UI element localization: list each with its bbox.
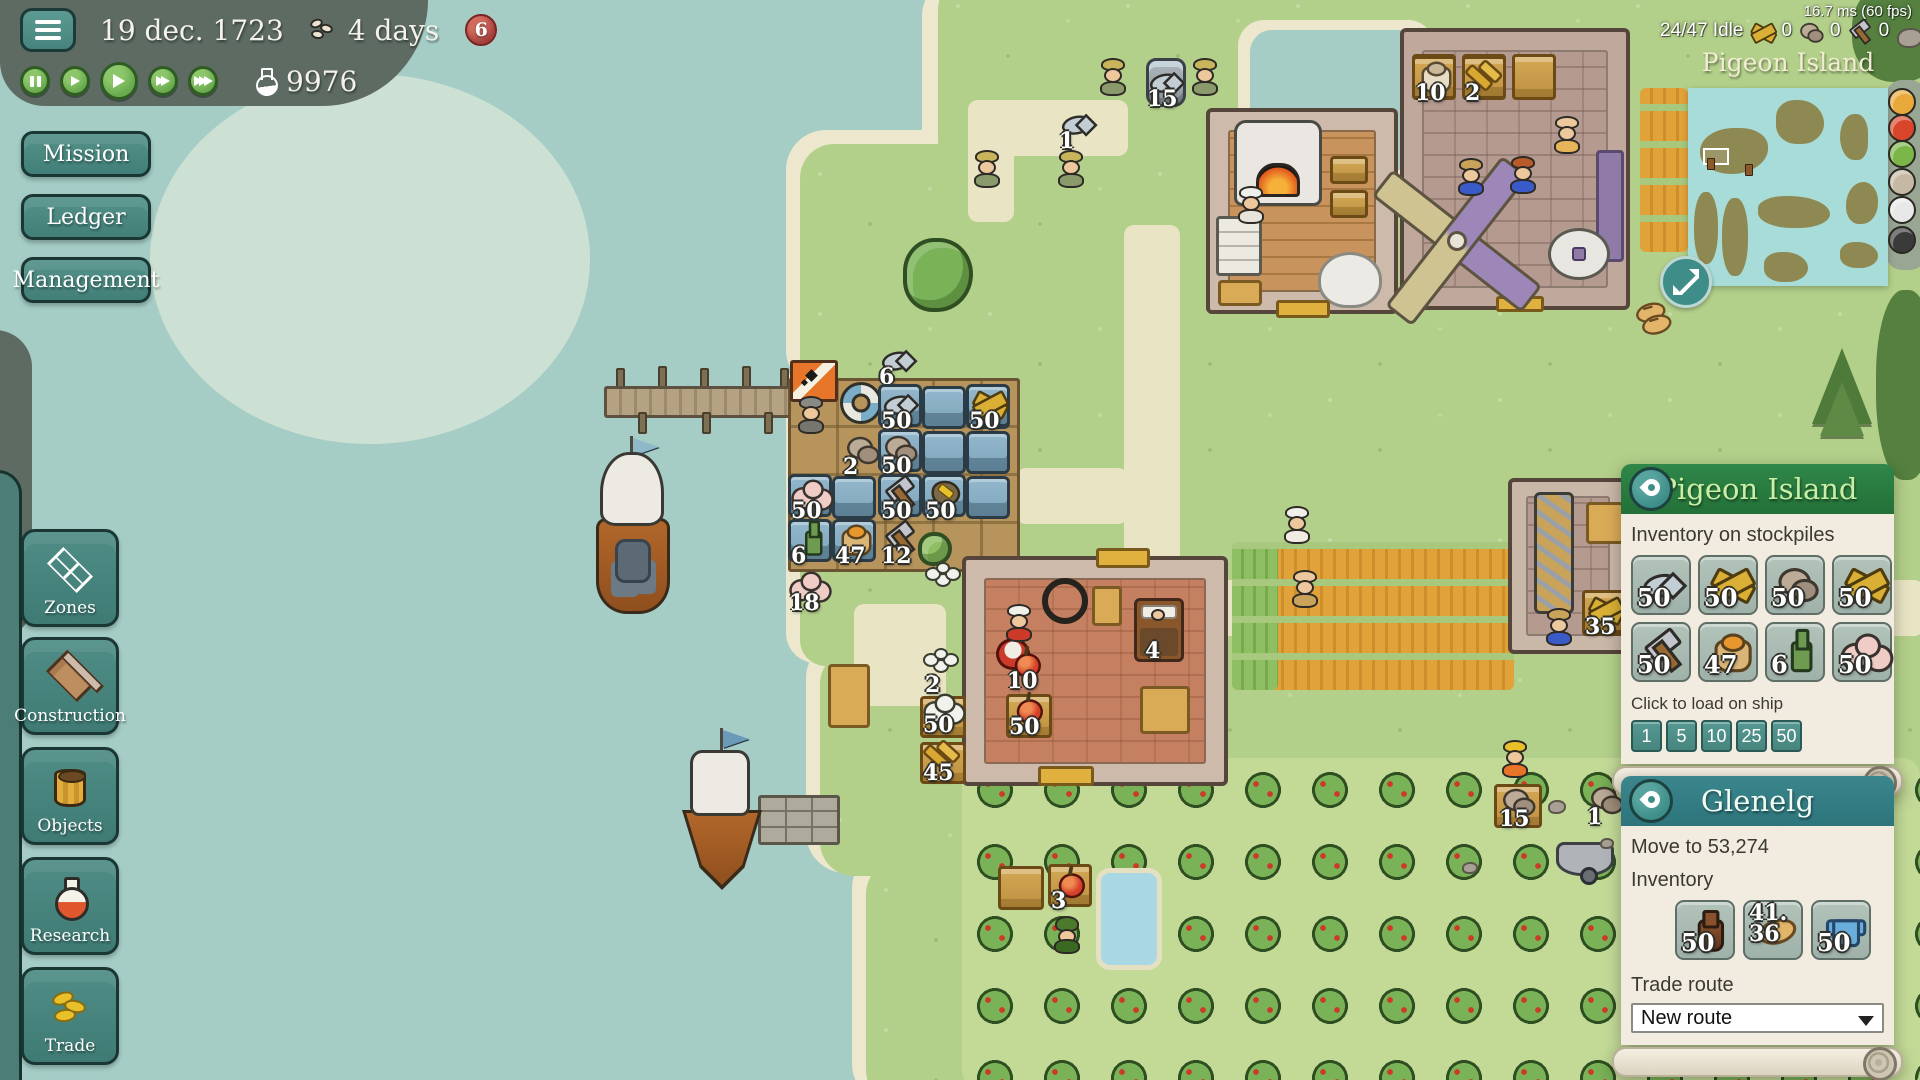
wool-bin-marker[interactable]: 50 — [788, 474, 832, 522]
pier-post — [658, 366, 667, 388]
dock-worker[interactable] — [796, 396, 826, 436]
cargo-item-bread[interactable]: 41.36 — [1743, 900, 1803, 960]
tool-objects-button[interactable]: Objects — [21, 747, 119, 845]
baker[interactable] — [1236, 186, 1266, 226]
pier-post — [764, 412, 773, 434]
stone-icon — [1799, 19, 1822, 42]
resource-apple-icon[interactable] — [1888, 114, 1916, 142]
forager[interactable] — [1052, 916, 1082, 956]
tool-construction-button[interactable]: Construction — [21, 637, 119, 735]
house-door-top — [1096, 548, 1150, 568]
stock-item-planks[interactable]: 50 — [1698, 555, 1758, 615]
minimap-title: Pigeon Island — [1688, 48, 1888, 77]
research-flask-icon — [254, 68, 276, 94]
hammer-marker[interactable]: 12 — [878, 519, 922, 567]
main-menu-button[interactable] — [20, 8, 76, 52]
ship-inventory-heading: Inventory — [1631, 869, 1884, 892]
empty-stockpile-bin[interactable] — [922, 386, 966, 429]
stock-item-fish[interactable]: 50 — [1631, 555, 1691, 615]
load-5-button[interactable]: 5 — [1666, 720, 1697, 752]
resource-marker-fish[interactable]: 6 — [876, 340, 920, 388]
trade-icon — [24, 980, 116, 1036]
planks-crate-marker[interactable]: 35 — [1582, 590, 1626, 638]
stock-item-hammer[interactable]: 50 — [1631, 622, 1691, 682]
forest-edge — [1876, 290, 1920, 480]
ship-panel-title: Glenelg — [1701, 784, 1814, 818]
stockpile-inventory-heading: Inventory on stockpiles — [1631, 524, 1884, 547]
island-panel-header: Pigeon Island — [1621, 464, 1894, 514]
miller[interactable] — [1456, 158, 1486, 198]
game-screen: 6 1 15 10 2 2 50 50 50 50 50 50 6 47 12 … — [0, 0, 1920, 1080]
crate[interactable] — [1330, 156, 1368, 184]
pine-tree — [1812, 348, 1872, 424]
idle-workers: 24/47 Idle — [1660, 20, 1743, 42]
sawhorse-planks[interactable] — [1534, 492, 1574, 614]
load-25-button[interactable]: 25 — [1736, 720, 1767, 752]
location-pin-icon — [1629, 779, 1673, 823]
notification-badge[interactable]: 6 — [465, 14, 497, 46]
tool-zones-button[interactable]: Zones — [21, 529, 119, 627]
flour-crate-marker[interactable]: 10 — [1412, 56, 1456, 104]
bakery-table[interactable] — [1218, 280, 1262, 306]
minimap-expand-button[interactable] — [1660, 256, 1712, 308]
cook[interactable] — [1004, 604, 1034, 644]
stone-crate-marker[interactable]: 15 — [1496, 782, 1540, 830]
pier-post — [702, 412, 711, 434]
pier-post — [742, 366, 751, 388]
fish-bin-marker[interactable]: 50 — [878, 384, 922, 432]
resource-marker-fish[interactable]: 1 — [1056, 104, 1100, 152]
apple-marker[interactable]: 10 — [1004, 644, 1048, 692]
resource-stone-icon[interactable] — [1888, 168, 1916, 196]
fast-forward-button[interactable] — [148, 66, 178, 96]
empty-stockpile-bin[interactable] — [922, 431, 966, 474]
planks-count: 0 — [1781, 20, 1792, 42]
loom-table — [1092, 586, 1122, 626]
play-slow-button[interactable] — [60, 66, 90, 96]
ledger-button[interactable]: Ledger — [21, 194, 151, 240]
ship-inventory-grid: 50 41.36 50 — [1675, 900, 1884, 960]
island-panel-title: Pigeon Island — [1657, 472, 1857, 506]
stockpile-grid: 50 50 50 50 50 47 6 50 — [1631, 555, 1884, 682]
trade-route-heading: Trade route — [1631, 974, 1884, 997]
resource-leaf-icon[interactable] — [1888, 140, 1916, 168]
empty-crate[interactable] — [998, 866, 1044, 910]
fisherman[interactable] — [972, 150, 1002, 190]
resource-coal-icon[interactable] — [1888, 226, 1916, 254]
bottle-bin-marker[interactable]: 6 — [788, 519, 832, 567]
stock-item-wool[interactable]: 50 — [1832, 622, 1892, 682]
ship-panel-header: Glenelg — [1621, 776, 1894, 826]
food-days: 4 days — [348, 14, 440, 47]
ship-panel: Glenelg Move to 53,274 Inventory 50 41.3… — [1621, 776, 1894, 1077]
cloud-blob — [150, 74, 590, 444]
food-icon — [308, 17, 338, 43]
stock-item-stones[interactable]: 50 — [1765, 555, 1825, 615]
miner[interactable] — [1500, 740, 1530, 780]
resource-iron-icon[interactable] — [1888, 196, 1916, 224]
island-panel: Pigeon Island Inventory on stockpiles 50… — [1621, 464, 1894, 796]
fisherman[interactable] — [1190, 58, 1220, 98]
cargo-item-shirt[interactable]: 50 — [1811, 900, 1871, 960]
villager-with-bread[interactable] — [1552, 116, 1582, 156]
ore-bin-marker[interactable]: 50 — [922, 474, 966, 522]
farmer[interactable] — [1290, 570, 1320, 610]
spinning-wheel[interactable] — [1042, 578, 1088, 624]
miller[interactable] — [1508, 156, 1538, 196]
research-points: 9976 — [286, 65, 357, 98]
management-button[interactable]: Management — [21, 257, 151, 303]
rock — [1897, 28, 1920, 48]
stone-bin-marker[interactable]: 50 — [878, 429, 922, 477]
resource-corn-icon[interactable] — [1888, 88, 1916, 116]
rock — [1462, 862, 1478, 874]
construction-icon — [24, 650, 116, 706]
objects-icon — [24, 760, 116, 816]
load-10-button[interactable]: 10 — [1701, 720, 1732, 752]
outdoor-table — [828, 664, 870, 728]
chevron-down-icon — [1858, 1016, 1874, 1026]
trade-route-select[interactable]: New route — [1631, 1003, 1884, 1033]
buoy[interactable] — [840, 382, 882, 424]
load-on-ship-heading: Click to load on ship — [1631, 694, 1884, 714]
apple-crate-marker[interactable]: 3 — [1048, 864, 1092, 912]
fisherman[interactable] — [1098, 58, 1128, 98]
minimap-marker — [1707, 158, 1715, 170]
sprout-rows — [1232, 542, 1278, 690]
wheat-field-edge — [1640, 88, 1688, 252]
fastest-button[interactable] — [188, 66, 218, 96]
ship-small[interactable] — [594, 436, 674, 622]
tool-research-button[interactable]: Research — [21, 857, 119, 955]
pause-button[interactable] — [20, 66, 50, 96]
bed-marker[interactable]: 4 — [1142, 614, 1186, 662]
mill-crate[interactable] — [1512, 54, 1556, 100]
fisherman[interactable] — [1056, 150, 1086, 190]
carpenter[interactable] — [1544, 608, 1574, 648]
research-icon — [24, 870, 116, 926]
stone-jetty[interactable] — [758, 795, 840, 845]
rock — [1600, 838, 1614, 849]
stock-item-grain-sack[interactable]: 47 — [1698, 622, 1758, 682]
load-50-button[interactable]: 50 — [1771, 720, 1802, 752]
play-button[interactable] — [100, 62, 138, 100]
cotton-plant[interactable] — [936, 562, 950, 574]
bakery-door — [1276, 300, 1330, 318]
wool-marker[interactable]: 18 — [786, 566, 830, 614]
rock — [1548, 800, 1566, 814]
hammer-bin-marker[interactable]: 50 — [878, 474, 922, 522]
mission-button[interactable]: Mission — [21, 131, 151, 177]
stock-item-boards[interactable]: 50 — [1832, 555, 1892, 615]
stone-count: 0 — [1830, 20, 1841, 42]
empty-stockpile-bin[interactable] — [966, 476, 1010, 519]
cotton-crate-marker[interactable]: 50 — [920, 688, 964, 736]
hay-crate-marker[interactable]: 45 — [920, 736, 964, 784]
pond — [1096, 868, 1162, 970]
wheat-crate-marker[interactable]: 2 — [1462, 56, 1506, 104]
tool-shelf — [1586, 502, 1624, 544]
house-table — [1140, 686, 1190, 734]
planks-icon — [1751, 19, 1774, 42]
fish-barrel-marker[interactable]: 15 — [1144, 62, 1188, 110]
sidebar-ribbon — [0, 470, 22, 1080]
apple-crate-marker[interactable]: 50 — [1006, 690, 1050, 738]
empty-stockpile-bin[interactable] — [832, 476, 876, 519]
minimap[interactable] — [1688, 88, 1888, 286]
house-door-bottom — [1038, 766, 1094, 786]
ship-glenelg[interactable] — [682, 726, 762, 888]
path — [1016, 468, 1128, 524]
hammer-count: 0 — [1879, 20, 1890, 42]
stock-item-bottle[interactable]: 6 — [1765, 622, 1825, 682]
empty-stockpile-bin[interactable] — [966, 431, 1010, 474]
pier-post — [638, 412, 647, 434]
trade-route-value: New route — [1641, 1007, 1732, 1030]
zones-icon — [24, 542, 116, 598]
load-1-button[interactable]: 1 — [1631, 720, 1662, 752]
villager[interactable] — [1282, 506, 1312, 546]
cargo-item-jug[interactable]: 50 — [1675, 900, 1735, 960]
planks-bin-marker[interactable]: 50 — [966, 384, 1010, 432]
location-pin-icon — [1629, 467, 1673, 511]
sack-bin-marker[interactable]: 47 — [832, 519, 876, 567]
panel-scroll-decoration — [1612, 1047, 1903, 1077]
game-date: 19 dec. 1723 — [100, 14, 284, 47]
minimap-marker — [1745, 164, 1753, 176]
tool-trade-button[interactable]: Trade — [21, 967, 119, 1065]
ship-status: Move to 53,274 — [1631, 836, 1884, 859]
hammer-icon — [1848, 19, 1871, 42]
load-amount-buttons: 1 5 10 25 50 — [1631, 720, 1884, 752]
